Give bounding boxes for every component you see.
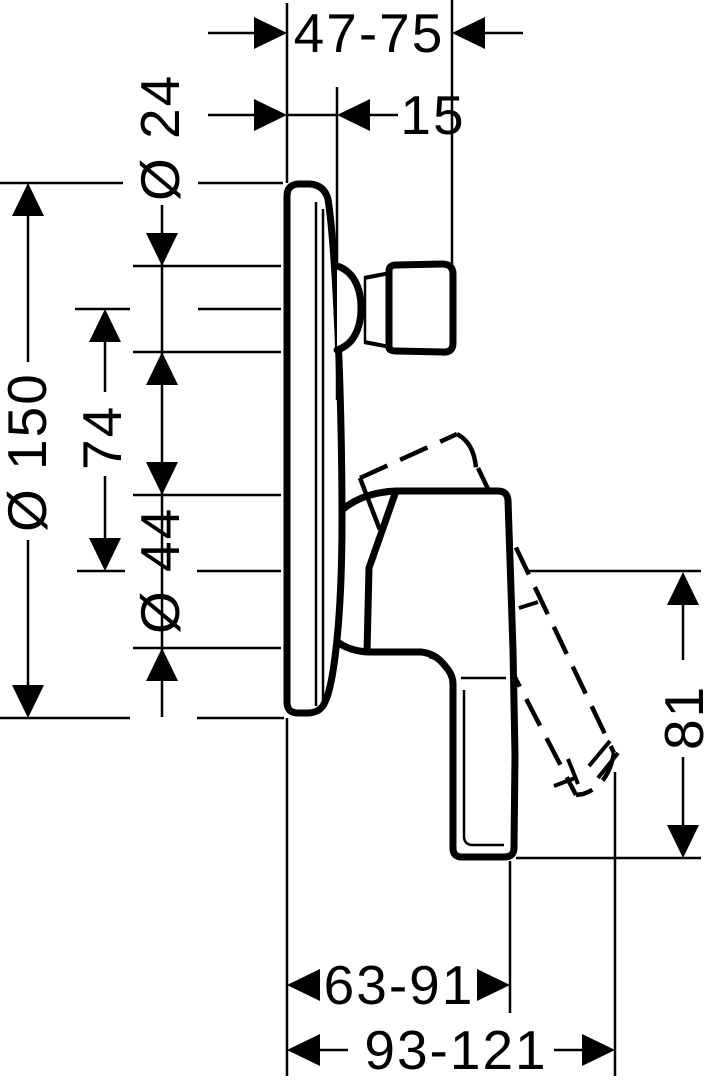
connector-neck-fill [365,272,389,348]
arrow-right-icon [477,969,510,1001]
connector-cylinder [389,264,453,352]
dim-rough-in-depth: 47-75 [208,0,523,264]
arrow-left-icon [287,969,320,1001]
arrow-up-icon [89,309,121,342]
arrow-down-icon [146,462,178,495]
arrow-down-icon [12,685,44,718]
arrow-right-icon [254,17,287,49]
arrow-down-icon [667,825,699,858]
arrow-up-icon [667,572,699,605]
dim-lever-depth-range: 93-121 [287,1019,615,1080]
dim-label-grip-depth-range: 63-91 [324,954,475,1016]
arrow-right-icon [582,1034,615,1066]
arrow-up-icon [146,648,178,681]
lever-open-position-phantom-details [519,602,618,786]
dim-label-lever-height: 81 [653,685,710,750]
dim-grip-depth-range: 63-91 [287,954,510,1016]
dim-plate-diameter: Ø 150 [0,183,284,718]
phantom-top-edge [360,434,457,478]
arrow-up-icon [12,183,44,216]
dim-label-rough-in-depth: 47-75 [294,2,445,64]
phantom-tip-inner-3 [589,741,610,766]
dim-label-connector-diameter: Ø 24 [129,74,191,201]
phantom-pivot-dash [519,602,538,608]
drawing-canvas: 47-75 15 Ø 150 74 Ø 24 [0,0,710,1080]
arrow-down-icon [146,233,178,266]
connector-dome [337,266,361,350]
phantom-top-cap [457,434,476,468]
arrow-left-icon [337,99,370,131]
dim-label-plate-diameter: Ø 150 [0,372,58,532]
arrow-left-icon [452,17,485,49]
arrow-left-icon [287,1034,320,1066]
dim-label-body-diameter: Ø 44 [129,507,191,634]
plate-outline [287,184,342,713]
escutcheon-plate [287,184,342,713]
dim-lever-height: 81 [516,571,710,858]
arrow-right-icon [254,99,287,131]
dim-label-lever-depth-range: 93-121 [364,1019,547,1080]
dim-label-axis-spacing: 74 [71,405,133,470]
handle-silhouette [367,491,515,857]
spout-connector [337,264,453,352]
arrow-down-icon [89,538,121,571]
dim-label-plate-projection: 15 [400,84,465,146]
handle-bottom-to-plate [339,643,367,652]
handle-body [339,491,515,857]
technical-drawing-svg: 47-75 15 Ø 150 74 Ø 24 [0,0,710,1080]
arrow-up-icon [146,352,178,385]
